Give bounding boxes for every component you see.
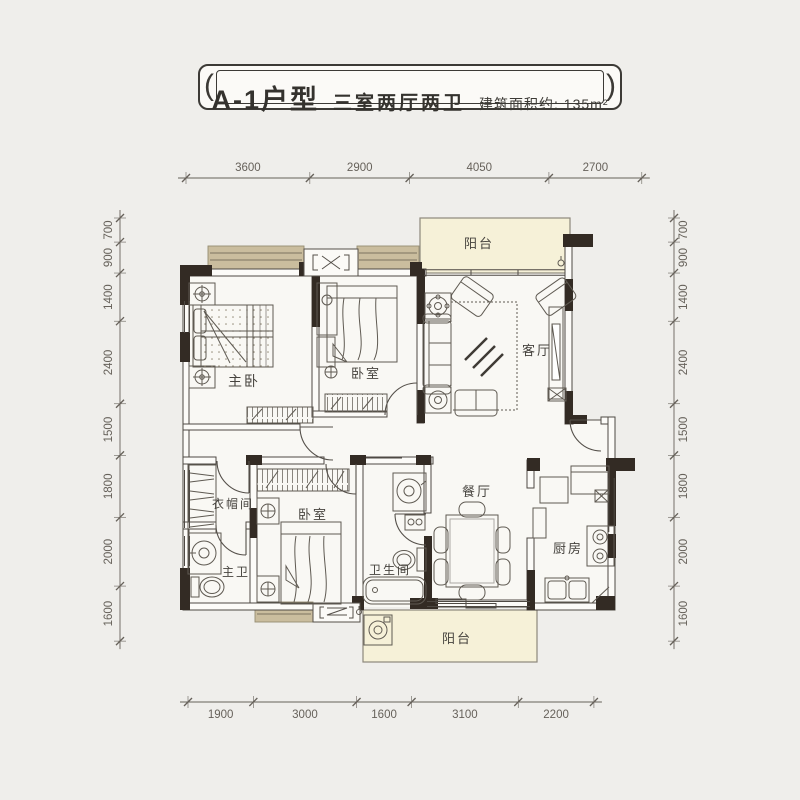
room-label-balcony-bottom: 阳台 bbox=[442, 631, 472, 646]
dim-label: 2000 bbox=[678, 539, 690, 565]
dim-label: 1800 bbox=[103, 474, 115, 500]
dim-label: 1500 bbox=[678, 417, 690, 443]
balcony-top-area bbox=[420, 218, 570, 273]
dim-label: 2400 bbox=[678, 350, 690, 376]
lamp-icon bbox=[261, 582, 275, 596]
dim-label: 1600 bbox=[678, 601, 690, 627]
room-label-master-bedroom: 主卧 bbox=[228, 373, 260, 389]
lamp-icon bbox=[325, 366, 337, 378]
dim-label: 2900 bbox=[347, 162, 373, 174]
dim-label: 3100 bbox=[452, 709, 478, 721]
room-label-balcony-top: 阳台 bbox=[464, 236, 494, 251]
room-label-dining-room: 餐厅 bbox=[462, 484, 492, 499]
dim-label: 700 bbox=[103, 220, 115, 239]
dim-label: 1400 bbox=[678, 284, 690, 310]
dim-label: 2400 bbox=[103, 350, 115, 376]
floorplan-page: { "title_banner": { "ornament_left": "("… bbox=[0, 0, 800, 800]
room-label-living-room: 客厅 bbox=[522, 343, 552, 358]
dim-label: 1600 bbox=[103, 601, 115, 627]
dim-label: 3000 bbox=[292, 709, 318, 721]
dim-label: 1600 bbox=[371, 709, 397, 721]
room-label-bathroom: 卫生间 bbox=[369, 563, 411, 577]
dim-label: 3600 bbox=[235, 162, 261, 174]
dim-label: 2700 bbox=[583, 162, 609, 174]
dim-label: 1800 bbox=[678, 474, 690, 500]
dim-bottom: 19003000160031002200 bbox=[180, 696, 602, 721]
dim-label: 900 bbox=[103, 248, 115, 267]
room-label-master-bath: 主卫 bbox=[222, 565, 250, 579]
dim-label: 900 bbox=[678, 248, 690, 267]
dim-label: 1900 bbox=[208, 709, 234, 721]
wardrobe bbox=[257, 469, 349, 491]
floorplan-drawing: 主卧卧室客厅阳台衣帽间主卫卧室卫生间餐厅厨房阳台 360029004050270… bbox=[0, 0, 800, 800]
wardrobe bbox=[247, 407, 313, 423]
dim-top: 3600290040502700 bbox=[178, 162, 650, 184]
ac-box-bottom bbox=[313, 603, 360, 622]
dim-label: 700 bbox=[678, 220, 690, 239]
dim-label: 1500 bbox=[103, 417, 115, 443]
room-label-bedroom-3: 卧室 bbox=[298, 507, 328, 522]
dim-label: 4050 bbox=[466, 162, 492, 174]
dim-label: 2200 bbox=[543, 709, 569, 721]
room-label-bedroom-2: 卧室 bbox=[351, 366, 381, 381]
room-label-cloakroom: 衣帽间 bbox=[212, 496, 254, 511]
ac-box-top bbox=[304, 249, 358, 276]
dim-right: 700900140024001500180020001600 bbox=[668, 210, 690, 649]
dim-label: 2000 bbox=[103, 539, 115, 565]
dim-label: 1400 bbox=[103, 284, 115, 310]
room-label-kitchen: 厨房 bbox=[553, 541, 583, 556]
dim-left: 700900140024001500180020001600 bbox=[103, 210, 126, 649]
wardrobe bbox=[325, 394, 387, 412]
lamp-icon bbox=[261, 504, 275, 518]
